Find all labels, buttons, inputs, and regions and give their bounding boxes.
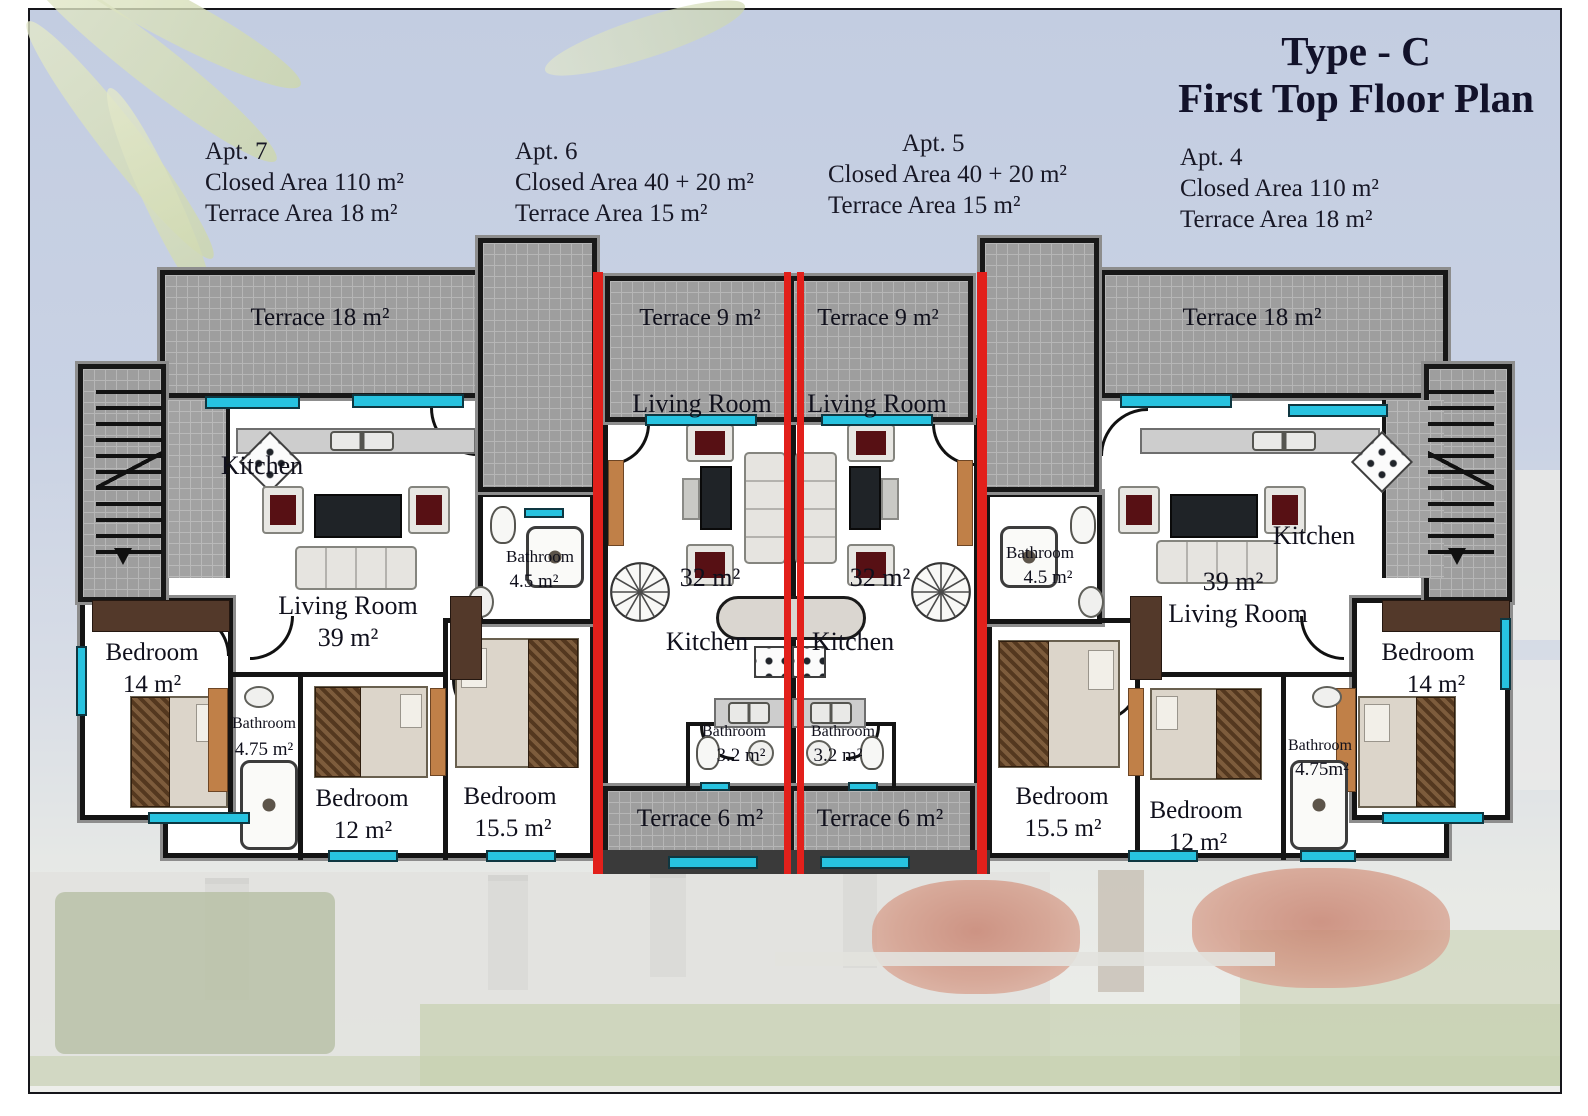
tv-table (1170, 494, 1258, 538)
label-apt4-bedroom155: Bedroom (1015, 784, 1108, 810)
interior-wall (1281, 674, 1286, 860)
window-strip (820, 856, 910, 869)
label-apt7-living-area: 39 m² (318, 624, 379, 651)
label-apt4-bathroom45-area: 4.5 m² (1024, 568, 1073, 588)
stair-arrow-down (1448, 548, 1466, 565)
label-apt7-bathroom45-area: 4.5 m² (510, 572, 559, 592)
tree-trunk (1098, 870, 1144, 992)
stair-arrow-down (114, 548, 132, 565)
apt5-name: Apt. 5 (828, 128, 1067, 159)
bathroom-sink (1312, 686, 1342, 708)
armchair (1118, 486, 1160, 534)
kitchen-sink (1252, 431, 1316, 451)
shower (240, 760, 298, 850)
window-strip (524, 508, 564, 518)
armchair (408, 486, 450, 534)
apt7-terrace (160, 270, 480, 398)
window-strip (486, 850, 556, 862)
label-apt4-bedroom12-area: 12 m² (1169, 830, 1227, 856)
table (849, 466, 881, 530)
label-apt7-bathroom475: Bathroom (232, 716, 296, 733)
apt5-closed-area: Closed Area 40 + 20 m² (828, 159, 1067, 190)
chair (682, 478, 700, 520)
label-apt4-bedroom12: Bedroom (1149, 798, 1242, 824)
label-apt7-living: Living Room (278, 592, 417, 619)
armchair (262, 486, 304, 534)
floor-plan-sheet: Type - C First Top Floor Plan Apt. 7 Clo… (0, 0, 1588, 1116)
wardrobe (208, 688, 228, 792)
bed (1150, 688, 1262, 780)
bench (608, 460, 624, 546)
label-apt6-kitchen: Kitchen (666, 628, 748, 655)
stairwell-right (980, 238, 1099, 492)
interior-wall (232, 672, 448, 677)
window-strip (848, 782, 878, 791)
interior-wall (892, 722, 896, 788)
apt6-closed-area: Closed Area 40 + 20 m² (515, 167, 754, 198)
kitchen-sink (728, 702, 770, 724)
window-strip (700, 782, 730, 791)
apt4-closed-area: Closed Area 110 m² (1180, 173, 1379, 204)
label-apt4-kitchen: Kitchen (1273, 522, 1355, 549)
apt6-name: Apt. 6 (515, 136, 754, 167)
sofa (744, 452, 786, 564)
apt6-terrace-area: Terrace Area 15 m² (515, 198, 754, 229)
stairwell-left (478, 238, 597, 492)
toilet (1070, 506, 1096, 544)
label-apt5-living: Living Room (807, 390, 946, 417)
red-bush (1192, 868, 1450, 988)
title-line2: First Top Floor Plan (1178, 75, 1534, 122)
label-apt7-kitchen: Kitchen (221, 452, 303, 479)
apt4-terrace (1100, 270, 1448, 398)
label-apt7-bathroom45: Bathroom (506, 548, 574, 566)
chair (881, 478, 899, 520)
building-facade (1512, 470, 1560, 640)
wardrobe (430, 688, 446, 776)
label-apt7-bedroom14-area: 14 m² (123, 672, 181, 698)
party-wall-red (593, 272, 603, 874)
party-wall-red (784, 272, 791, 874)
hedge (55, 892, 335, 1054)
label-apt5-bathroom-area: 3.2 m² (814, 746, 863, 766)
label-apt4-bedroom155-area: 15.5 m² (1025, 816, 1102, 842)
apt4-terrace-area: Terrace Area 18 m² (1180, 204, 1379, 235)
label-apt4-bedroom14-area: 14 m² (1407, 672, 1465, 698)
label-apt7-bedroom155: Bedroom (463, 784, 556, 810)
interior-wall (298, 674, 303, 860)
apt7-terrace-area: Terrace Area 18 m² (205, 198, 404, 229)
label-apt5-terrace-bottom: Terrace 6 m² (817, 806, 944, 832)
pillar (488, 875, 528, 990)
bottom-wall (600, 850, 990, 874)
armchair (686, 424, 734, 462)
party-wall-red (977, 272, 987, 874)
title-line1: Type - C (1178, 28, 1534, 75)
label-apt7-bedroom12-area: 12 m² (334, 818, 392, 844)
label-apt4-terrace: Terrace 18 m² (1182, 305, 1321, 331)
window-strip (1288, 404, 1388, 417)
label-apt6-terrace-bottom: Terrace 6 m² (637, 806, 764, 832)
apt7-tiled-corridor (168, 400, 230, 578)
window-strip (668, 856, 758, 869)
pillar (650, 872, 686, 977)
planter-edge (775, 952, 1275, 966)
legend-apt4: Apt. 4 Closed Area 110 m² Terrace Area 1… (1180, 142, 1379, 235)
wardrobe-dark (1382, 600, 1510, 632)
interior-wall (686, 722, 690, 788)
label-apt7-bedroom12: Bedroom (315, 786, 408, 812)
legend-apt7: Apt. 7 Closed Area 110 m² Terrace Area 1… (205, 136, 404, 229)
interior-wall (1139, 672, 1354, 677)
apt7-name: Apt. 7 (205, 136, 404, 167)
label-apt6-terrace-top: Terrace 9 m² (639, 306, 760, 331)
table (700, 466, 732, 530)
bed (314, 686, 428, 778)
sofa (295, 546, 417, 590)
legend-apt6: Apt. 6 Closed Area 40 + 20 m² Terrace Ar… (515, 136, 754, 229)
bathroom-sink (1078, 586, 1104, 618)
window-strip (352, 394, 464, 408)
window-strip (148, 812, 250, 824)
label-apt4-bedroom14: Bedroom (1381, 640, 1474, 666)
wardrobe (1128, 688, 1144, 776)
window-strip (76, 646, 87, 716)
apt5-terrace-area: Terrace Area 15 m² (828, 190, 1067, 221)
label-apt6-bathroom-area: 3.2 m² (717, 746, 766, 766)
page-title: Type - C First Top Floor Plan (1178, 28, 1534, 122)
toilet (860, 736, 884, 770)
wardrobe-dark (1130, 596, 1162, 680)
legend-apt5: Apt. 5 Closed Area 40 + 20 m² Terrace Ar… (828, 128, 1067, 221)
label-apt5-kitchen: Kitchen (812, 628, 894, 655)
label-apt4-bathroom475-area: 4.75m² (1295, 760, 1349, 780)
label-apt7-bedroom155-area: 15.5 m² (475, 816, 552, 842)
armchair (847, 424, 895, 462)
party-wall-red (797, 272, 804, 874)
window-strip (1500, 618, 1511, 690)
label-apt6-area: 32 m² (680, 564, 741, 591)
window-strip (1120, 394, 1232, 408)
label-apt5-terrace-top: Terrace 9 m² (817, 306, 938, 331)
apt4-name: Apt. 4 (1180, 142, 1379, 173)
label-apt6-bathroom: Bathroom (702, 724, 766, 741)
label-apt4-living: Living Room (1168, 600, 1307, 627)
spiral-staircase (608, 560, 672, 624)
kitchen-sink (330, 431, 394, 451)
window-strip (1382, 812, 1484, 824)
toilet (490, 506, 516, 544)
label-apt7-bathroom475-area: 4.75 m² (235, 740, 293, 760)
spiral-staircase (909, 560, 973, 624)
bench (957, 460, 973, 546)
red-bush (872, 880, 1080, 994)
label-apt6-living: Living Room (632, 390, 771, 417)
stair-diagonal (96, 378, 162, 563)
label-apt5-area: 32 m² (850, 564, 911, 591)
wardrobe-dark (92, 600, 230, 632)
label-apt4-bathroom45: Bathroom (1006, 544, 1074, 562)
wardrobe-dark (450, 596, 482, 680)
label-apt7-terrace: Terrace 18 m² (250, 305, 389, 331)
window-strip (328, 850, 398, 862)
label-apt4-bathroom475: Bathroom (1288, 738, 1352, 755)
building-facade (1512, 660, 1560, 790)
window-strip (1300, 850, 1356, 862)
bathroom-sink (244, 686, 274, 708)
stove (754, 646, 788, 678)
apt7-closed-area: Closed Area 110 m² (205, 167, 404, 198)
bed (1358, 696, 1456, 808)
stair-diagonal (1428, 378, 1494, 563)
tv-table (314, 494, 402, 538)
label-apt7-bedroom14: Bedroom (105, 640, 198, 666)
kitchen-sink (810, 702, 852, 724)
window-strip (205, 396, 300, 409)
label-apt4-living-area: 39 m² (1203, 568, 1264, 595)
bed (998, 640, 1120, 768)
label-apt5-bathroom: Bathroom (811, 724, 875, 741)
